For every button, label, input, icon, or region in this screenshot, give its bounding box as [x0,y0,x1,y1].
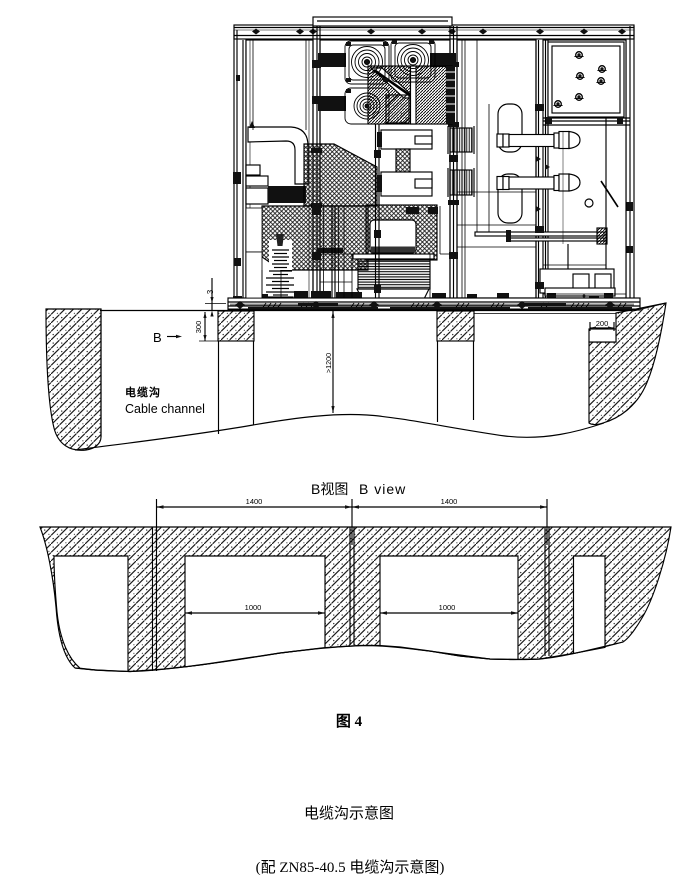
svg-text:>1200: >1200 [324,353,333,373]
svg-text:1400: 1400 [246,497,263,506]
svg-text:图 4: 图 4 [336,713,363,730]
svg-text:1000: 1000 [439,603,456,612]
svg-text:(配 ZN85-40.5 电缆沟示意图): (配 ZN85-40.5 电缆沟示意图) [256,858,445,876]
svg-text:200: 200 [596,319,609,328]
svg-text:300: 300 [194,321,203,334]
svg-text:1400: 1400 [441,497,458,506]
svg-text:3: 3 [206,289,215,294]
svg-text:B视图: B视图 [311,481,348,497]
svg-text:B: B [153,330,162,345]
svg-text:电缆沟: 电缆沟 [125,385,161,399]
svg-text:Cable channel: Cable channel [125,402,205,416]
svg-text:电缆沟示意图: 电缆沟示意图 [304,804,394,822]
svg-text:1000: 1000 [245,603,262,612]
svg-text:B view: B view [359,481,406,497]
